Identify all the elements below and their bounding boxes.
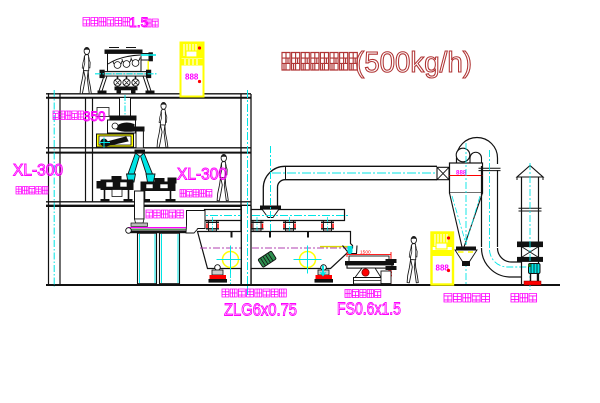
svg-text:FS0.6x1.5: FS0.6x1.5: [337, 299, 401, 319]
svg-text:(500kg/h): (500kg/h): [355, 47, 472, 79]
svg-text:ZLG6x0.75: ZLG6x0.75: [224, 300, 297, 320]
svg-text:XL-300: XL-300: [177, 166, 227, 184]
svg-text:888: 888: [456, 170, 467, 177]
svg-text:1.5: 1.5: [129, 14, 149, 30]
svg-text:888: 888: [185, 73, 199, 82]
svg-text:350: 350: [83, 109, 106, 124]
svg-text:XL-300: XL-300: [13, 162, 63, 180]
